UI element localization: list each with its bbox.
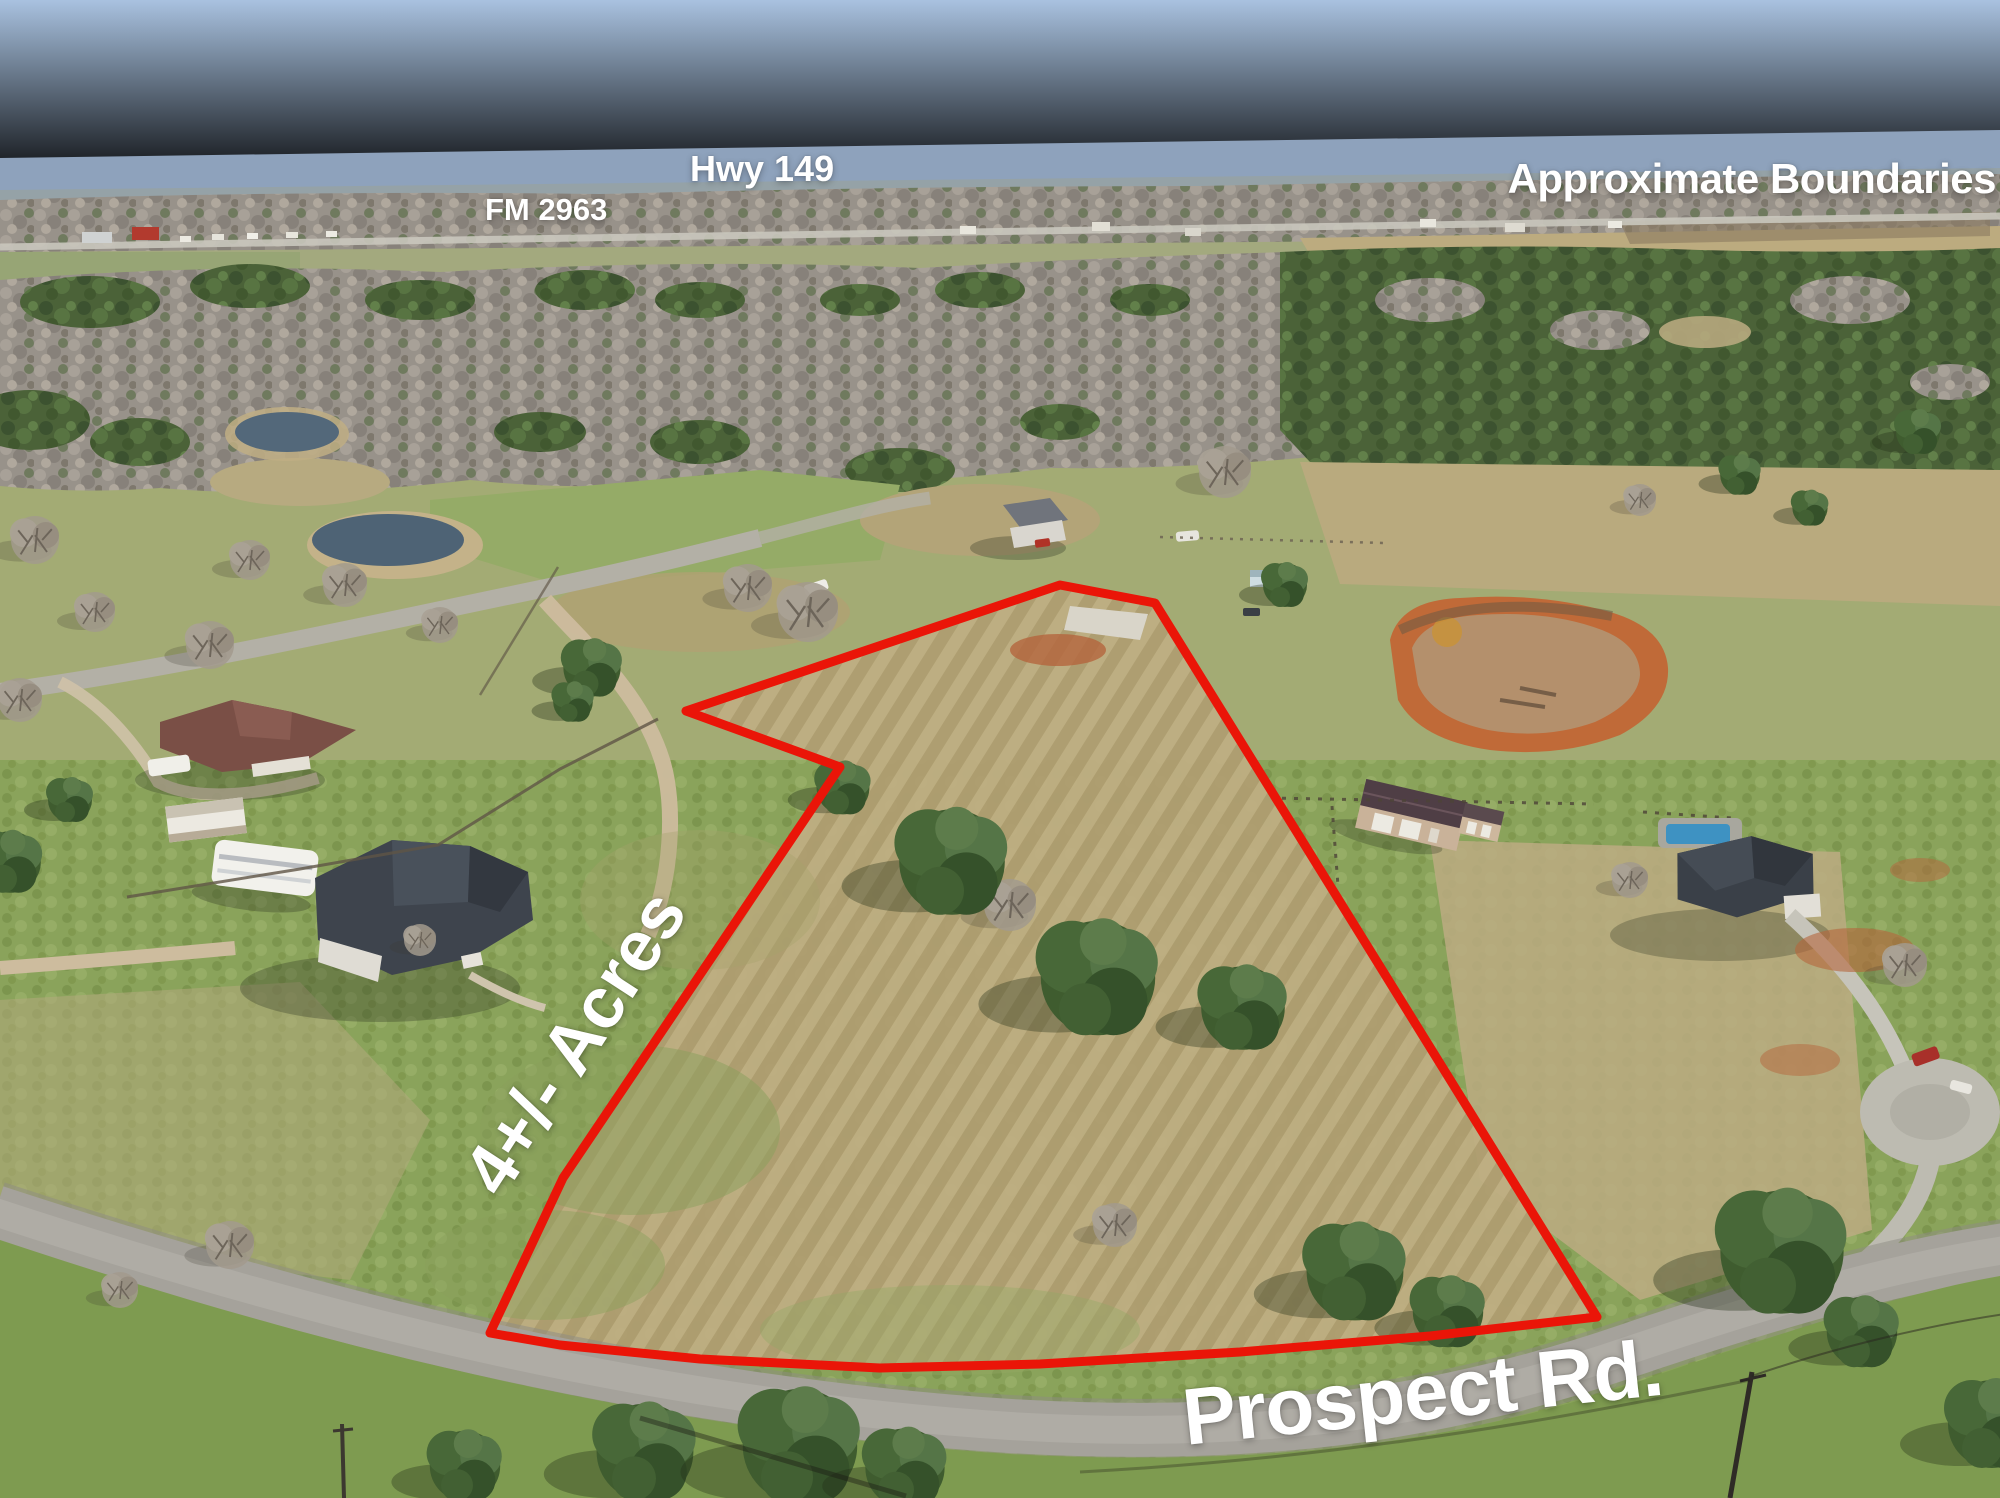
pole-left bbox=[342, 1424, 344, 1498]
forest-field-hole bbox=[1659, 316, 1751, 348]
aerial-scene bbox=[0, 0, 2000, 1498]
dark-suv bbox=[1243, 608, 1260, 616]
cul-de-sac-center bbox=[1890, 1084, 1970, 1140]
hwy-149-label: Hwy 149 bbox=[690, 148, 834, 190]
aerial-property-photo: Hwy 149 FM 2963 Approximate Boundaries 4… bbox=[0, 0, 2000, 1498]
small-pond bbox=[225, 407, 349, 461]
dirt-patch bbox=[1010, 634, 1106, 666]
white-truck-field bbox=[1176, 530, 1200, 542]
red-barn bbox=[132, 227, 159, 240]
fm-2963-label: FM 2963 bbox=[485, 192, 607, 228]
tan-patch-1 bbox=[210, 458, 390, 506]
right-pasture bbox=[1300, 462, 2000, 606]
approximate-boundaries-label: Approximate Boundaries bbox=[1508, 155, 1996, 203]
mud-pond bbox=[1390, 597, 1668, 752]
